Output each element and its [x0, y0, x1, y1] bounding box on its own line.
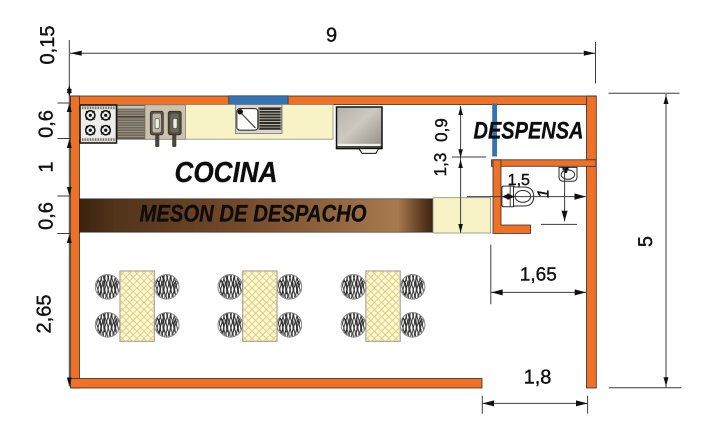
svg-text:COCINA: COCINA [175, 157, 278, 189]
svg-text:DESPENSA: DESPENSA [474, 118, 584, 145]
svg-text:2,65: 2,65 [34, 295, 56, 334]
svg-text:1,5: 1,5 [508, 172, 530, 189]
svg-text:0,9: 0,9 [432, 118, 451, 142]
svg-text:9: 9 [326, 25, 337, 47]
svg-text:0,15: 0,15 [37, 26, 59, 65]
svg-text:1,65: 1,65 [520, 265, 557, 286]
svg-text:5: 5 [635, 236, 657, 247]
svg-text:0,6: 0,6 [36, 202, 58, 230]
svg-text:1,8: 1,8 [524, 367, 552, 389]
svg-text:1: 1 [536, 189, 553, 198]
svg-text:1: 1 [36, 161, 58, 172]
svg-text:0,6: 0,6 [36, 110, 58, 138]
svg-text:1,3: 1,3 [431, 153, 450, 177]
svg-text:MESON DE DESPACHO: MESON DE DESPACHO [140, 201, 367, 228]
